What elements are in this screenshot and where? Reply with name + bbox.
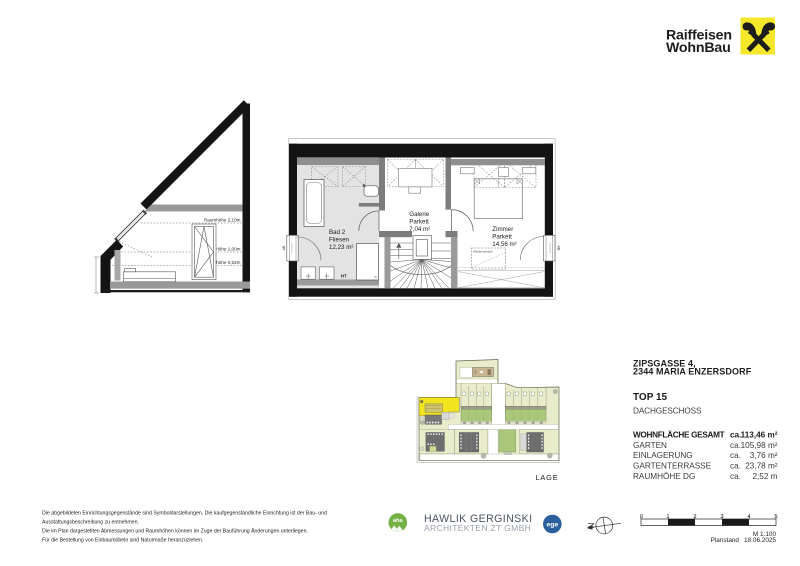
svg-text:Fliesen: Fliesen xyxy=(329,236,350,243)
svg-text:STB BRÜS: STB BRÜS xyxy=(291,242,294,253)
svg-text:aha: aha xyxy=(393,518,404,524)
svg-text:ca.: ca. xyxy=(730,441,741,450)
svg-text:RAUMHÖHE DG: RAUMHÖHE DG xyxy=(633,471,695,481)
svg-text:AB: AB xyxy=(282,245,286,250)
svg-text:TOP 15: TOP 15 xyxy=(633,392,668,403)
svg-text:Für die Bestellung von Einbaum: Für die Bestellung von Einbaumöbeln sind… xyxy=(42,538,203,544)
svg-text:Parkett: Parkett xyxy=(492,233,512,240)
svg-text:7,04 m²: 7,04 m² xyxy=(409,226,430,233)
svg-text:Ausstattungsbeschreibung zu en: Ausstattungsbeschreibung zu entnehmen. xyxy=(42,519,139,525)
svg-text:12,23 m²: 12,23 m² xyxy=(329,244,353,251)
svg-text:23,78 m²: 23,78 m² xyxy=(745,462,778,471)
svg-text:2,52 m: 2,52 m xyxy=(752,472,777,481)
svg-text:113,46 m²: 113,46 m² xyxy=(741,431,778,440)
svg-text:WOHNFLÄCHE GESAMT: WOHNFLÄCHE GESAMT xyxy=(633,430,725,440)
svg-text:105,98 m²: 105,98 m² xyxy=(741,441,778,450)
svg-text:Zimmer: Zimmer xyxy=(492,226,513,233)
svg-text:Galerie: Galerie xyxy=(409,211,430,218)
svg-text:Bad 2: Bad 2 xyxy=(329,229,346,236)
svg-text:3,76 m²: 3,76 m² xyxy=(750,451,778,460)
svg-text:LAGE: LAGE xyxy=(536,473,559,482)
svg-text:ca.: ca. xyxy=(730,472,741,481)
svg-text:Die im Plan dargestellten Abme: Die im Plan dargestellten Abmessungen un… xyxy=(42,528,308,535)
svg-text:EINLAGERUNG: EINLAGERUNG xyxy=(633,451,693,460)
svg-text:Parkett: Parkett xyxy=(409,219,429,226)
svg-text:ca.: ca. xyxy=(730,451,741,460)
svg-text:Die abgebildeten Einrichtungsg: Die abgebildeten Einrichtungsgegenstände… xyxy=(42,510,327,516)
svg-text:Planstand: Planstand xyxy=(711,537,740,544)
svg-text:Raumhöhe 2,10m: Raumhöhe 2,10m xyxy=(204,218,241,223)
svg-text:DACHGESCHOSS: DACHGESCHOSS xyxy=(633,407,702,416)
svg-text:18.06.2025: 18.06.2025 xyxy=(744,537,776,544)
svg-text:HT: HT xyxy=(341,273,347,278)
svg-text:1: 1 xyxy=(666,514,669,520)
svg-text:N: N xyxy=(586,523,595,529)
svg-text:14,56 m²: 14,56 m² xyxy=(492,241,516,248)
svg-text:2: 2 xyxy=(693,514,696,520)
svg-text:GARTEN: GARTEN xyxy=(633,441,667,450)
svg-text:ege: ege xyxy=(546,521,558,528)
svg-text:3: 3 xyxy=(720,514,723,520)
svg-text:2344 MARIA ENZERSDORF: 2344 MARIA ENZERSDORF xyxy=(633,367,752,377)
svg-text:GARTENTERRASSE: GARTENTERRASSE xyxy=(633,462,712,471)
svg-text:Kleiderschrank: Kleiderschrank xyxy=(473,250,493,254)
svg-text:STB BRÜS: STB BRÜS xyxy=(549,243,552,254)
svg-text:ARCHITEKTEN ZT GMBH: ARCHITEKTEN ZT GMBH xyxy=(424,523,531,533)
svg-text:AB: AB xyxy=(557,246,561,251)
svg-text:5: 5 xyxy=(774,514,777,520)
svg-text:ca.: ca. xyxy=(730,462,741,471)
svg-text:WohnBau: WohnBau xyxy=(666,40,731,56)
svg-text:0: 0 xyxy=(640,514,643,520)
svg-text:Höhe 1,00m: Höhe 1,00m xyxy=(215,247,240,252)
